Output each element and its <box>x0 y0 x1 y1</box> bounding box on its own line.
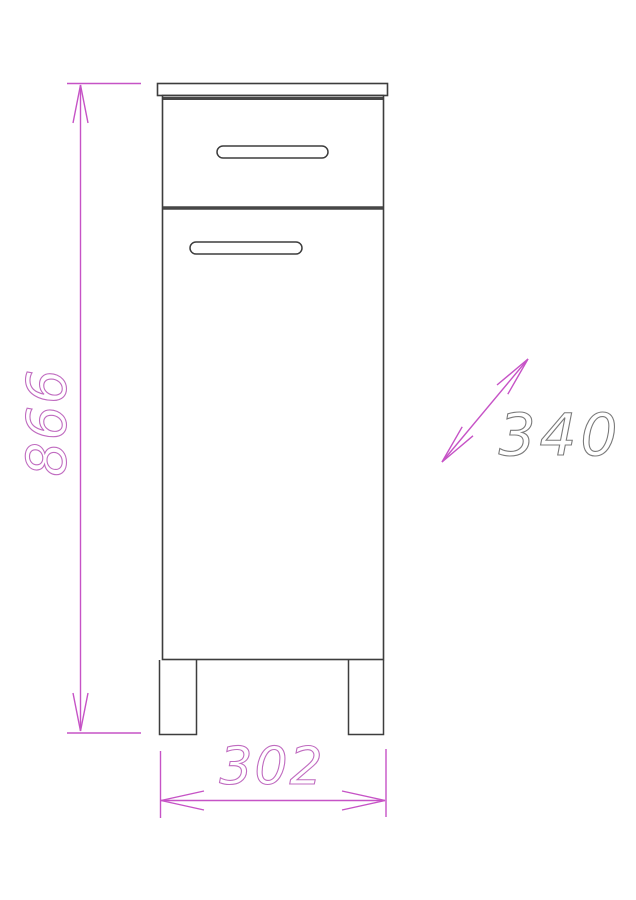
cabinet-right-leg <box>349 660 384 735</box>
dimension-lines-group <box>67 84 528 819</box>
cabinet-countertop <box>158 84 388 96</box>
drawer-handle-icon <box>217 146 328 158</box>
width-dimension-label: 302 <box>219 737 324 797</box>
cabinet-dimension-drawing: 866 302 340 <box>0 0 636 900</box>
depth-dimension-label: 340 <box>499 401 622 469</box>
door-handle-icon <box>190 242 302 254</box>
height-dimension-label: 866 <box>16 367 79 476</box>
technical-drawing-canvas: 866 302 340 <box>0 0 636 900</box>
cabinet-body <box>163 96 384 660</box>
cabinet-left-leg <box>160 660 197 735</box>
cabinet-outline-group <box>158 84 388 735</box>
